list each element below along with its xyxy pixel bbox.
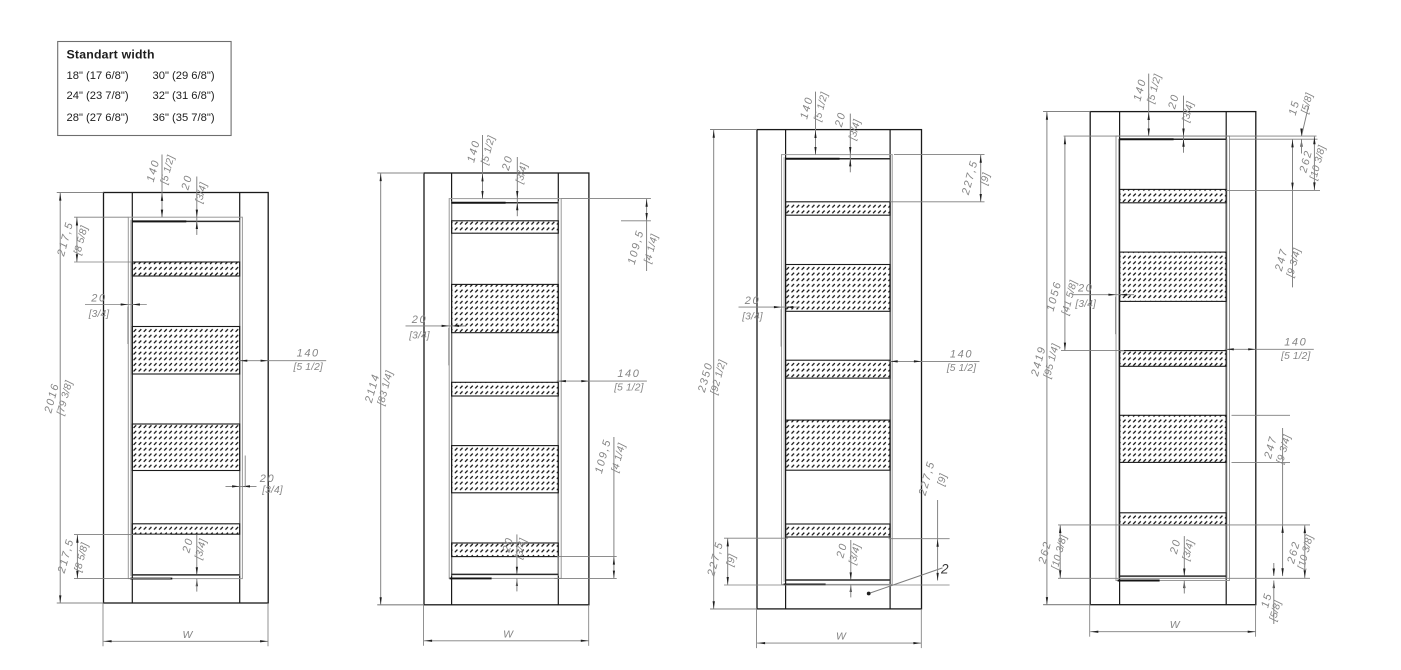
svg-text:32" (31 6/8"): 32" (31 6/8"): [153, 90, 215, 102]
svg-text:[5 1/2]: [5 1/2]: [613, 383, 644, 394]
svg-text:W: W: [503, 628, 515, 640]
svg-text:20: 20: [411, 314, 427, 326]
svg-text:[3/4]: [3/4]: [261, 485, 284, 496]
svg-text:36" (35 7/8"): 36" (35 7/8"): [153, 112, 215, 124]
svg-text:24" (23 7/8"): 24" (23 7/8"): [67, 90, 129, 102]
svg-text:[3/4]: [3/4]: [408, 330, 431, 341]
svg-text:W: W: [836, 631, 848, 643]
svg-text:[5 1/2]: [5 1/2]: [293, 362, 324, 373]
svg-text:[3/4]: [3/4]: [88, 309, 111, 320]
svg-text:20: 20: [1077, 283, 1093, 295]
svg-text:[3/4]: [3/4]: [741, 312, 764, 323]
svg-text:140: 140: [950, 348, 973, 360]
svg-text:20: 20: [90, 293, 106, 305]
svg-text:28" (27 6/8"): 28" (27 6/8"): [67, 112, 129, 124]
svg-text:140: 140: [1284, 336, 1307, 348]
svg-text:[5 1/2]: [5 1/2]: [946, 363, 977, 374]
svg-text:W: W: [1170, 619, 1182, 631]
svg-text:18" (17 6/8"): 18" (17 6/8"): [67, 70, 129, 82]
svg-text:140: 140: [617, 368, 640, 380]
svg-text:30" (29 6/8"): 30" (29 6/8"): [153, 70, 215, 82]
svg-text:20: 20: [259, 473, 275, 485]
svg-text:Standart width: Standart width: [67, 48, 155, 62]
svg-text:2: 2: [940, 562, 950, 577]
svg-text:20: 20: [744, 295, 760, 307]
svg-text:[5 1/2]: [5 1/2]: [1280, 351, 1311, 362]
svg-text:[3/4]: [3/4]: [1074, 299, 1097, 310]
svg-text:140: 140: [297, 348, 320, 360]
svg-text:W: W: [183, 629, 195, 641]
